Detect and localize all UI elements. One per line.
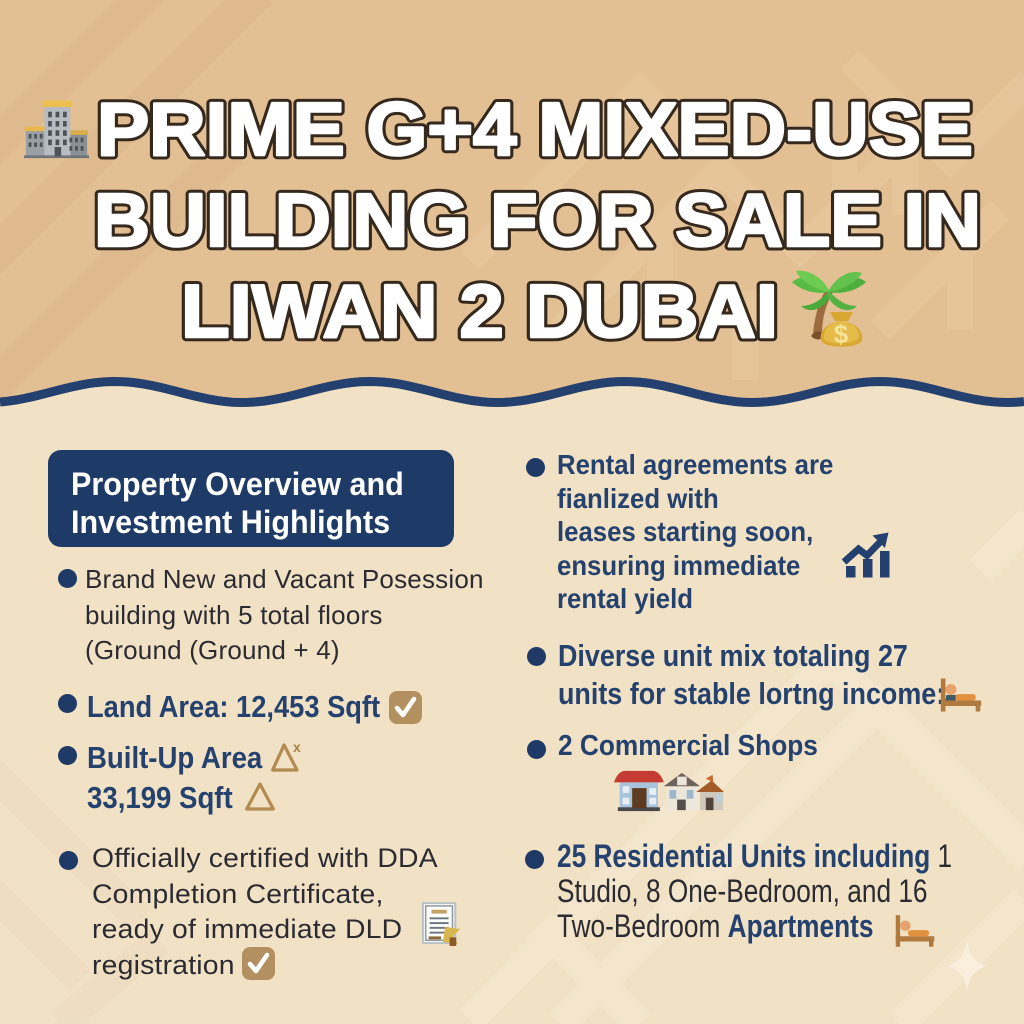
svg-text:x: x xyxy=(293,741,301,755)
svg-text:LIWAN 2 DUBAI: LIWAN 2 DUBAI xyxy=(181,269,778,353)
svg-text:PRIME G+4 MIXED-USE: PRIME G+4 MIXED-USE xyxy=(97,87,973,171)
svg-text:$: $ xyxy=(834,319,849,348)
svg-text:BUILDING FOR SALE IN: BUILDING FOR SALE IN xyxy=(94,178,981,262)
